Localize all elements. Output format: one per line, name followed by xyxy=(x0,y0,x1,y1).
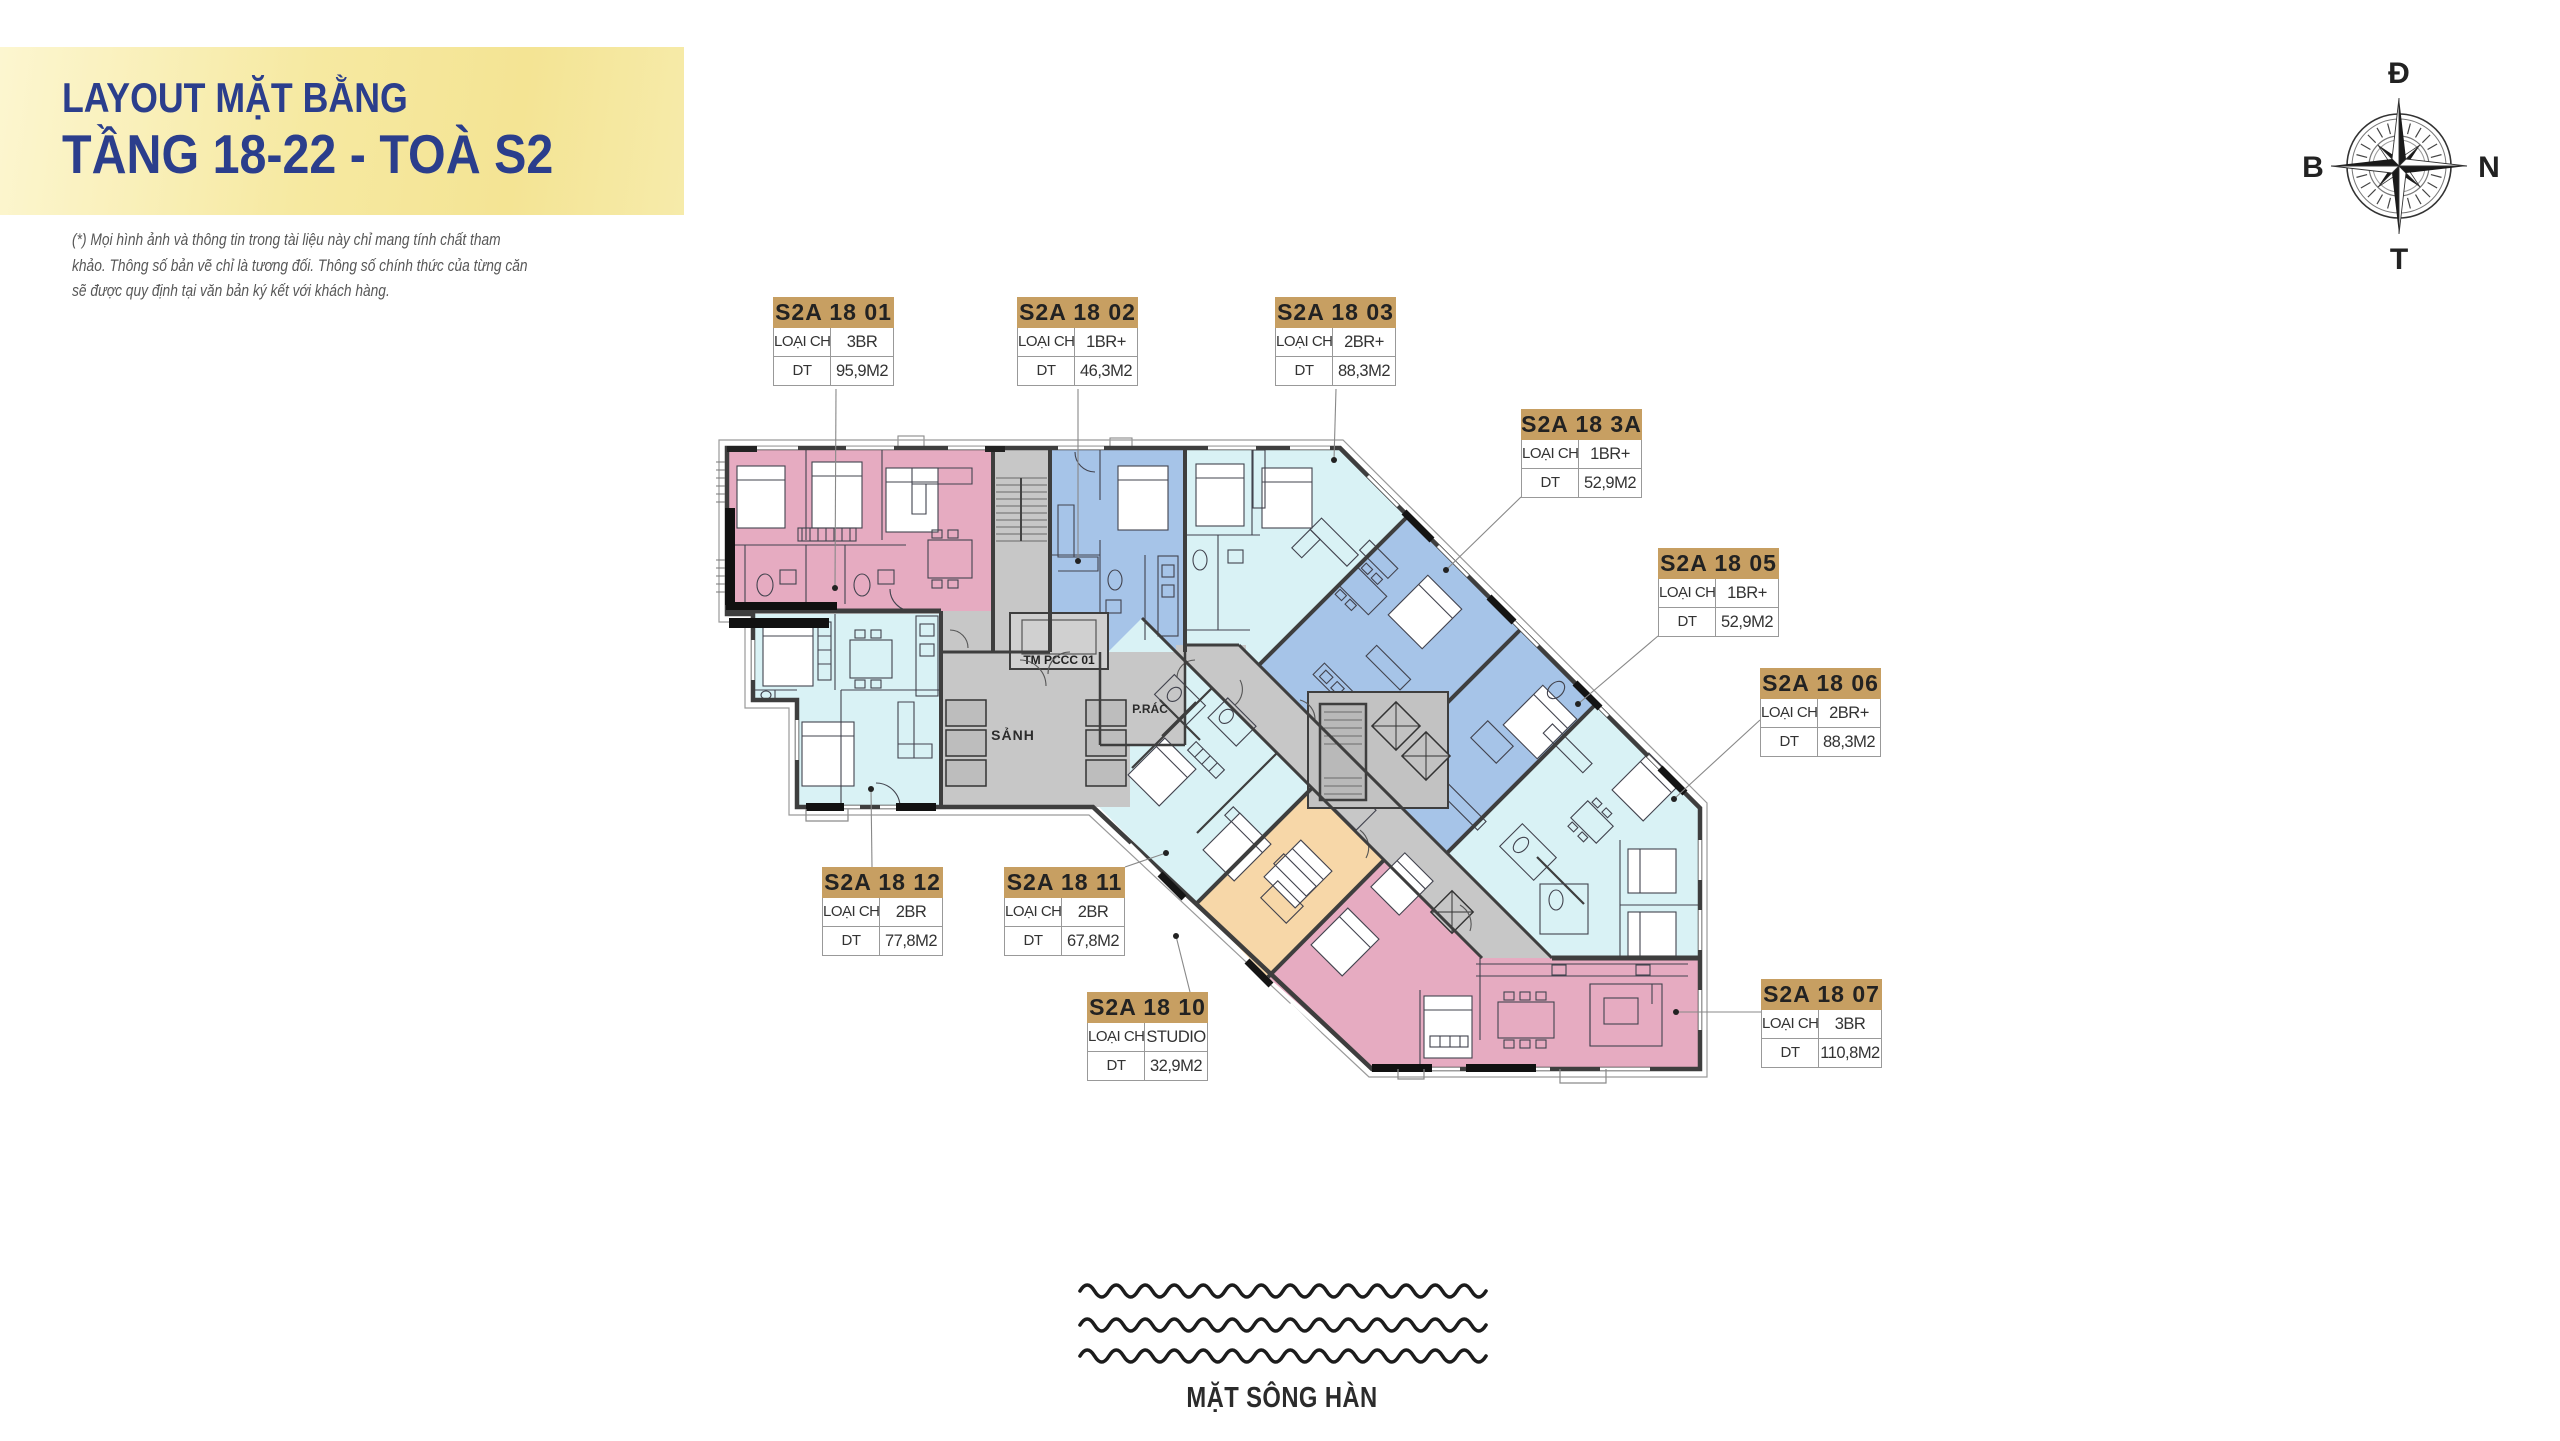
svg-text:B: B xyxy=(2302,151,2324,184)
svg-text:P.RÁC: P.RÁC xyxy=(1132,701,1168,716)
svg-text:T: T xyxy=(2390,243,2408,276)
svg-text:N: N xyxy=(2478,151,2500,184)
svg-text:SẢNH: SẢNH xyxy=(991,727,1035,743)
svg-text:Đ: Đ xyxy=(2388,57,2410,90)
